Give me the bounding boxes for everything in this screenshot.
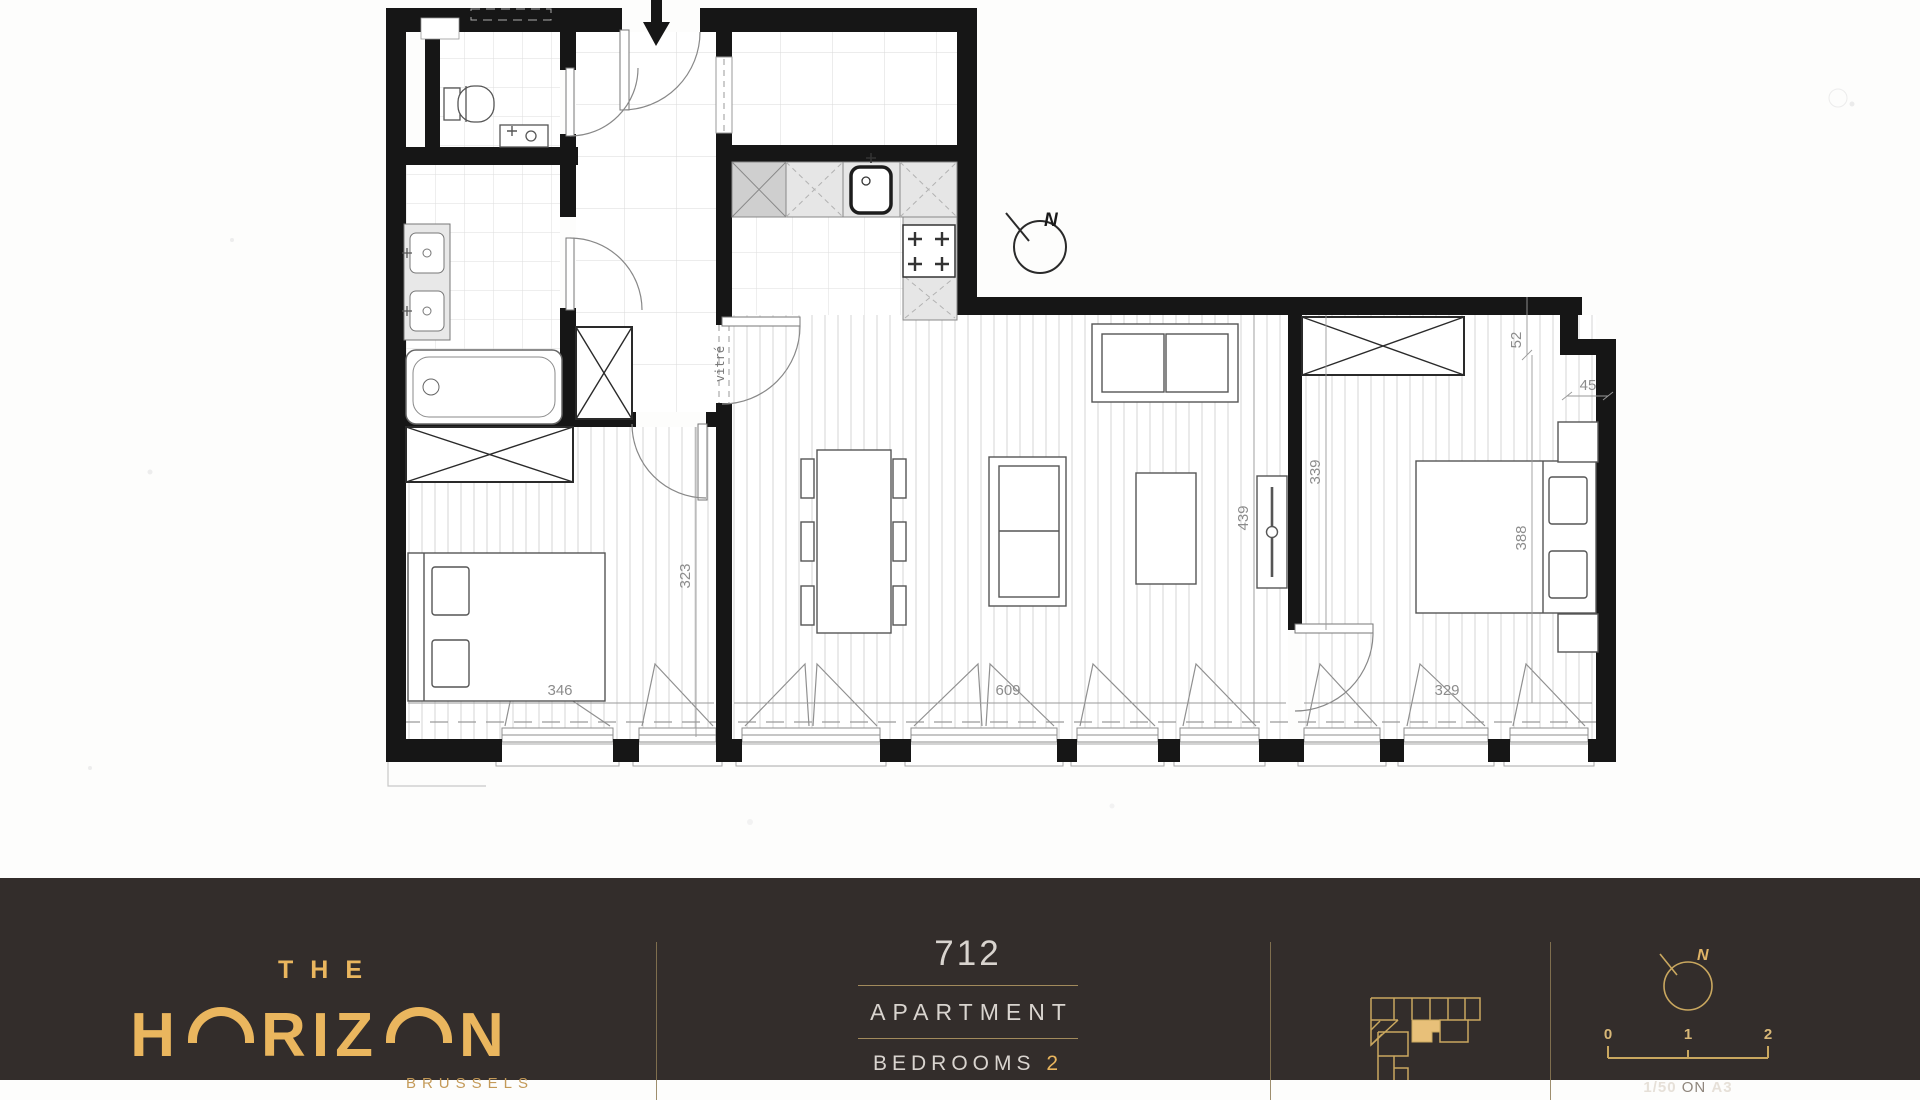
footer-band: THE HRIZN BRUSSELS 712 APARTMENT BEDROOM… <box>0 878 1920 1080</box>
brand-letter: Z <box>335 1013 379 1059</box>
unit-bedrooms: BEDROOMS 2 <box>848 1052 1088 1076</box>
svg-text:N: N <box>1697 947 1709 964</box>
dim-bedroom1-width: 346 <box>547 682 572 699</box>
unit-info: 712 APARTMENT BEDROOMS 2 <box>848 934 1088 1076</box>
footer-divider <box>1550 942 1551 1100</box>
floorplan-drawing: vitré <box>0 0 1920 880</box>
dim-bedroom1-depth: 323 <box>677 563 694 588</box>
bedrooms-label: BEDROOMS <box>873 1052 1036 1075</box>
exterior-edge-line <box>388 762 486 786</box>
bedroom1-furniture <box>408 553 605 701</box>
dim-step-height: 52 <box>1508 332 1525 349</box>
logo-arc-icon <box>188 1007 254 1043</box>
gold-rule <box>858 985 1078 986</box>
scale-tick: 0 <box>1604 1026 1612 1043</box>
scale-tick: 2 <box>1764 1026 1772 1043</box>
building-keyplan <box>1368 990 1500 1080</box>
footer-divider <box>656 942 657 1100</box>
wall-niche <box>421 18 459 39</box>
scale-on: ON <box>1682 1079 1707 1096</box>
dim-bedroom2-width: 329 <box>1434 682 1459 699</box>
footer-north-icon: N <box>1645 940 1731 1018</box>
svg-text:N: N <box>1044 210 1059 231</box>
footer-divider <box>1270 942 1271 1100</box>
scale-caption: 1/50 ON A3 <box>1598 1079 1778 1096</box>
brand-logo: THE HRIZN BRUSSELS <box>100 956 540 1092</box>
brand-the: THE <box>100 956 540 985</box>
unit-712-highlight <box>1412 1020 1440 1042</box>
unit-type: APARTMENT <box>848 999 1088 1026</box>
scale-ratio: 1/50 <box>1643 1079 1676 1096</box>
scale-paper: A3 <box>1711 1079 1732 1096</box>
dim-step-width: 45 <box>1580 377 1597 394</box>
brand-letter: I <box>312 1013 335 1059</box>
floorplan-page: { "plan": { "dimensions": { "bedroom1_wi… <box>0 0 1920 1080</box>
north-arrow-icon: N <box>1006 210 1066 273</box>
dim-living-width: 609 <box>995 682 1020 699</box>
dim-bed-wall: 388 <box>1513 525 1530 550</box>
dim-living-depth: 439 <box>1235 505 1252 530</box>
brand-city: BRUSSELS <box>100 1075 540 1092</box>
brand-letter: N <box>459 1013 510 1059</box>
glazed-door-label: vitré <box>713 346 727 382</box>
bedrooms-count: 2 <box>1046 1052 1063 1075</box>
glazed-panel <box>716 57 732 133</box>
gold-rule <box>858 1038 1078 1039</box>
brand-name: HRIZN <box>100 1007 540 1059</box>
scale-bar: 0 1 2 1/50 ON A3 <box>1598 1026 1778 1096</box>
brand-letter: H <box>130 1013 181 1059</box>
unit-number: 712 <box>848 934 1088 974</box>
logo-arc-icon <box>386 1007 452 1043</box>
scale-tick: 1 <box>1684 1026 1692 1043</box>
scale-bar-line <box>1598 1044 1778 1060</box>
dim-bedroom2-depth: 339 <box>1307 459 1324 484</box>
scale-tick-labels: 0 1 2 <box>1598 1026 1778 1044</box>
brand-letter: R <box>261 1013 312 1059</box>
